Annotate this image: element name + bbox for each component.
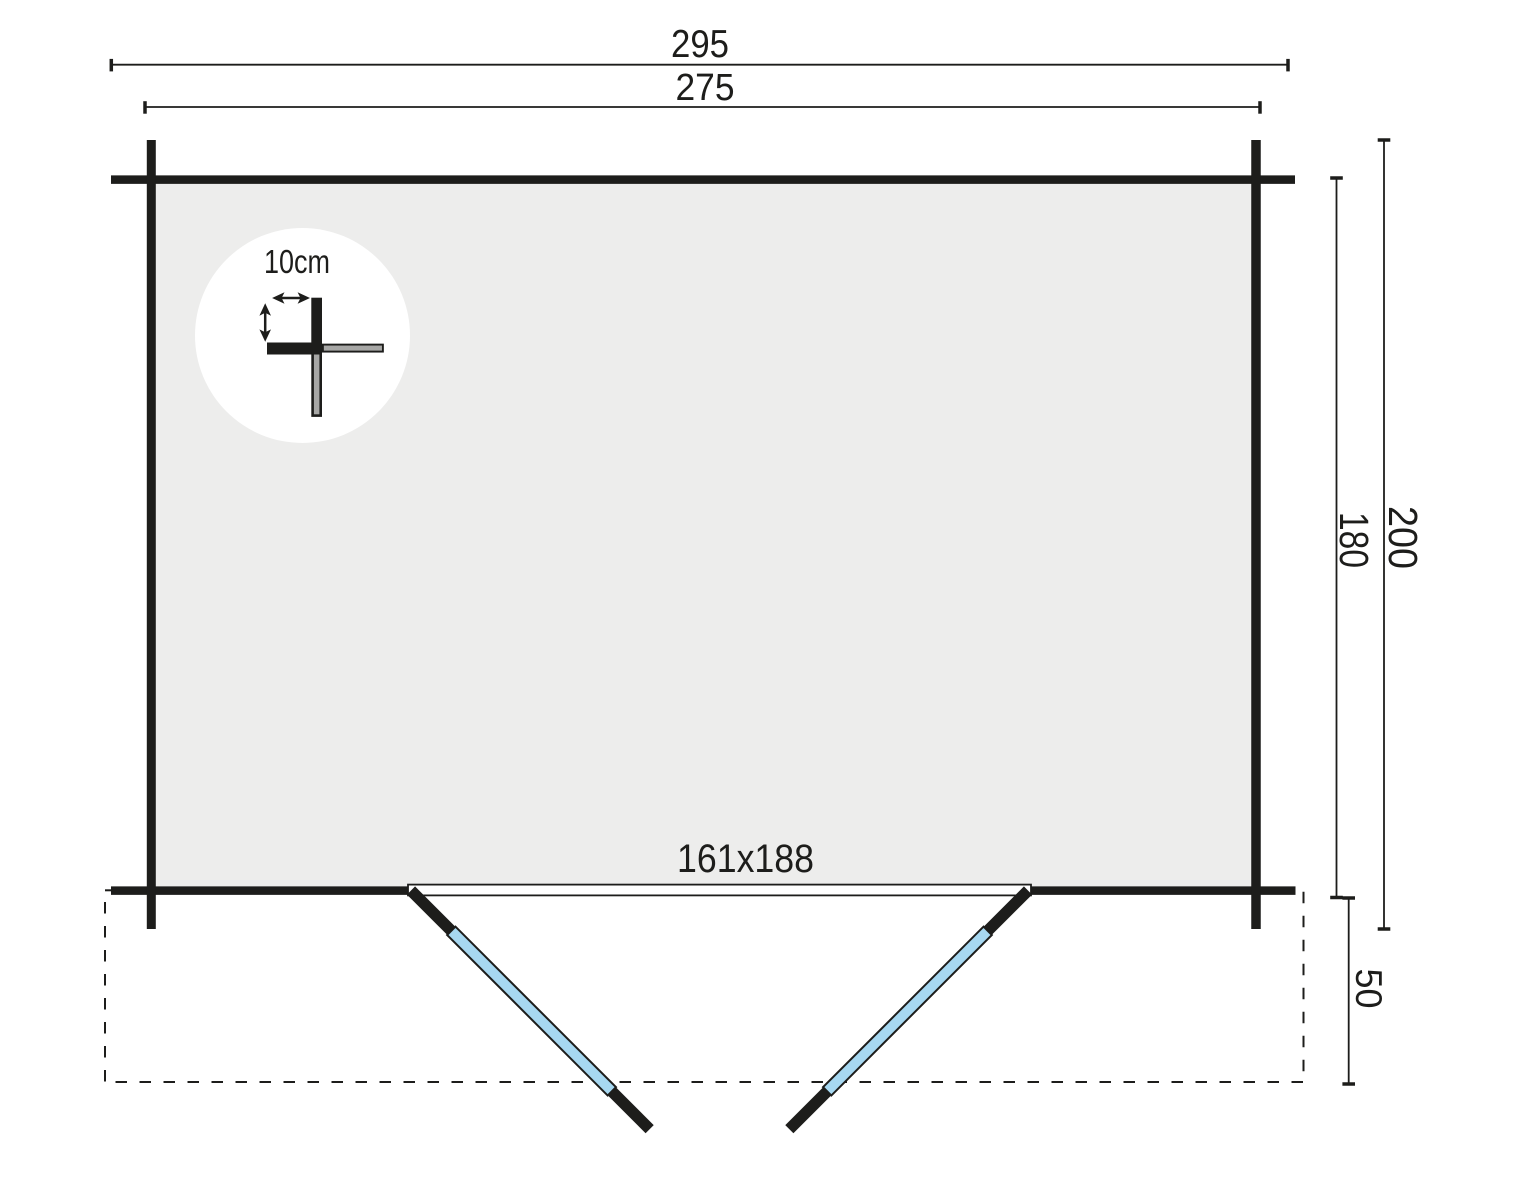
svg-text:161x188: 161x188 bbox=[677, 837, 814, 881]
svg-text:50: 50 bbox=[1348, 969, 1389, 1009]
svg-text:10cm: 10cm bbox=[264, 244, 330, 281]
svg-text:180: 180 bbox=[1331, 512, 1377, 568]
svg-text:295: 295 bbox=[671, 23, 729, 66]
svg-text:200: 200 bbox=[1380, 506, 1426, 569]
svg-text:275: 275 bbox=[676, 67, 735, 109]
